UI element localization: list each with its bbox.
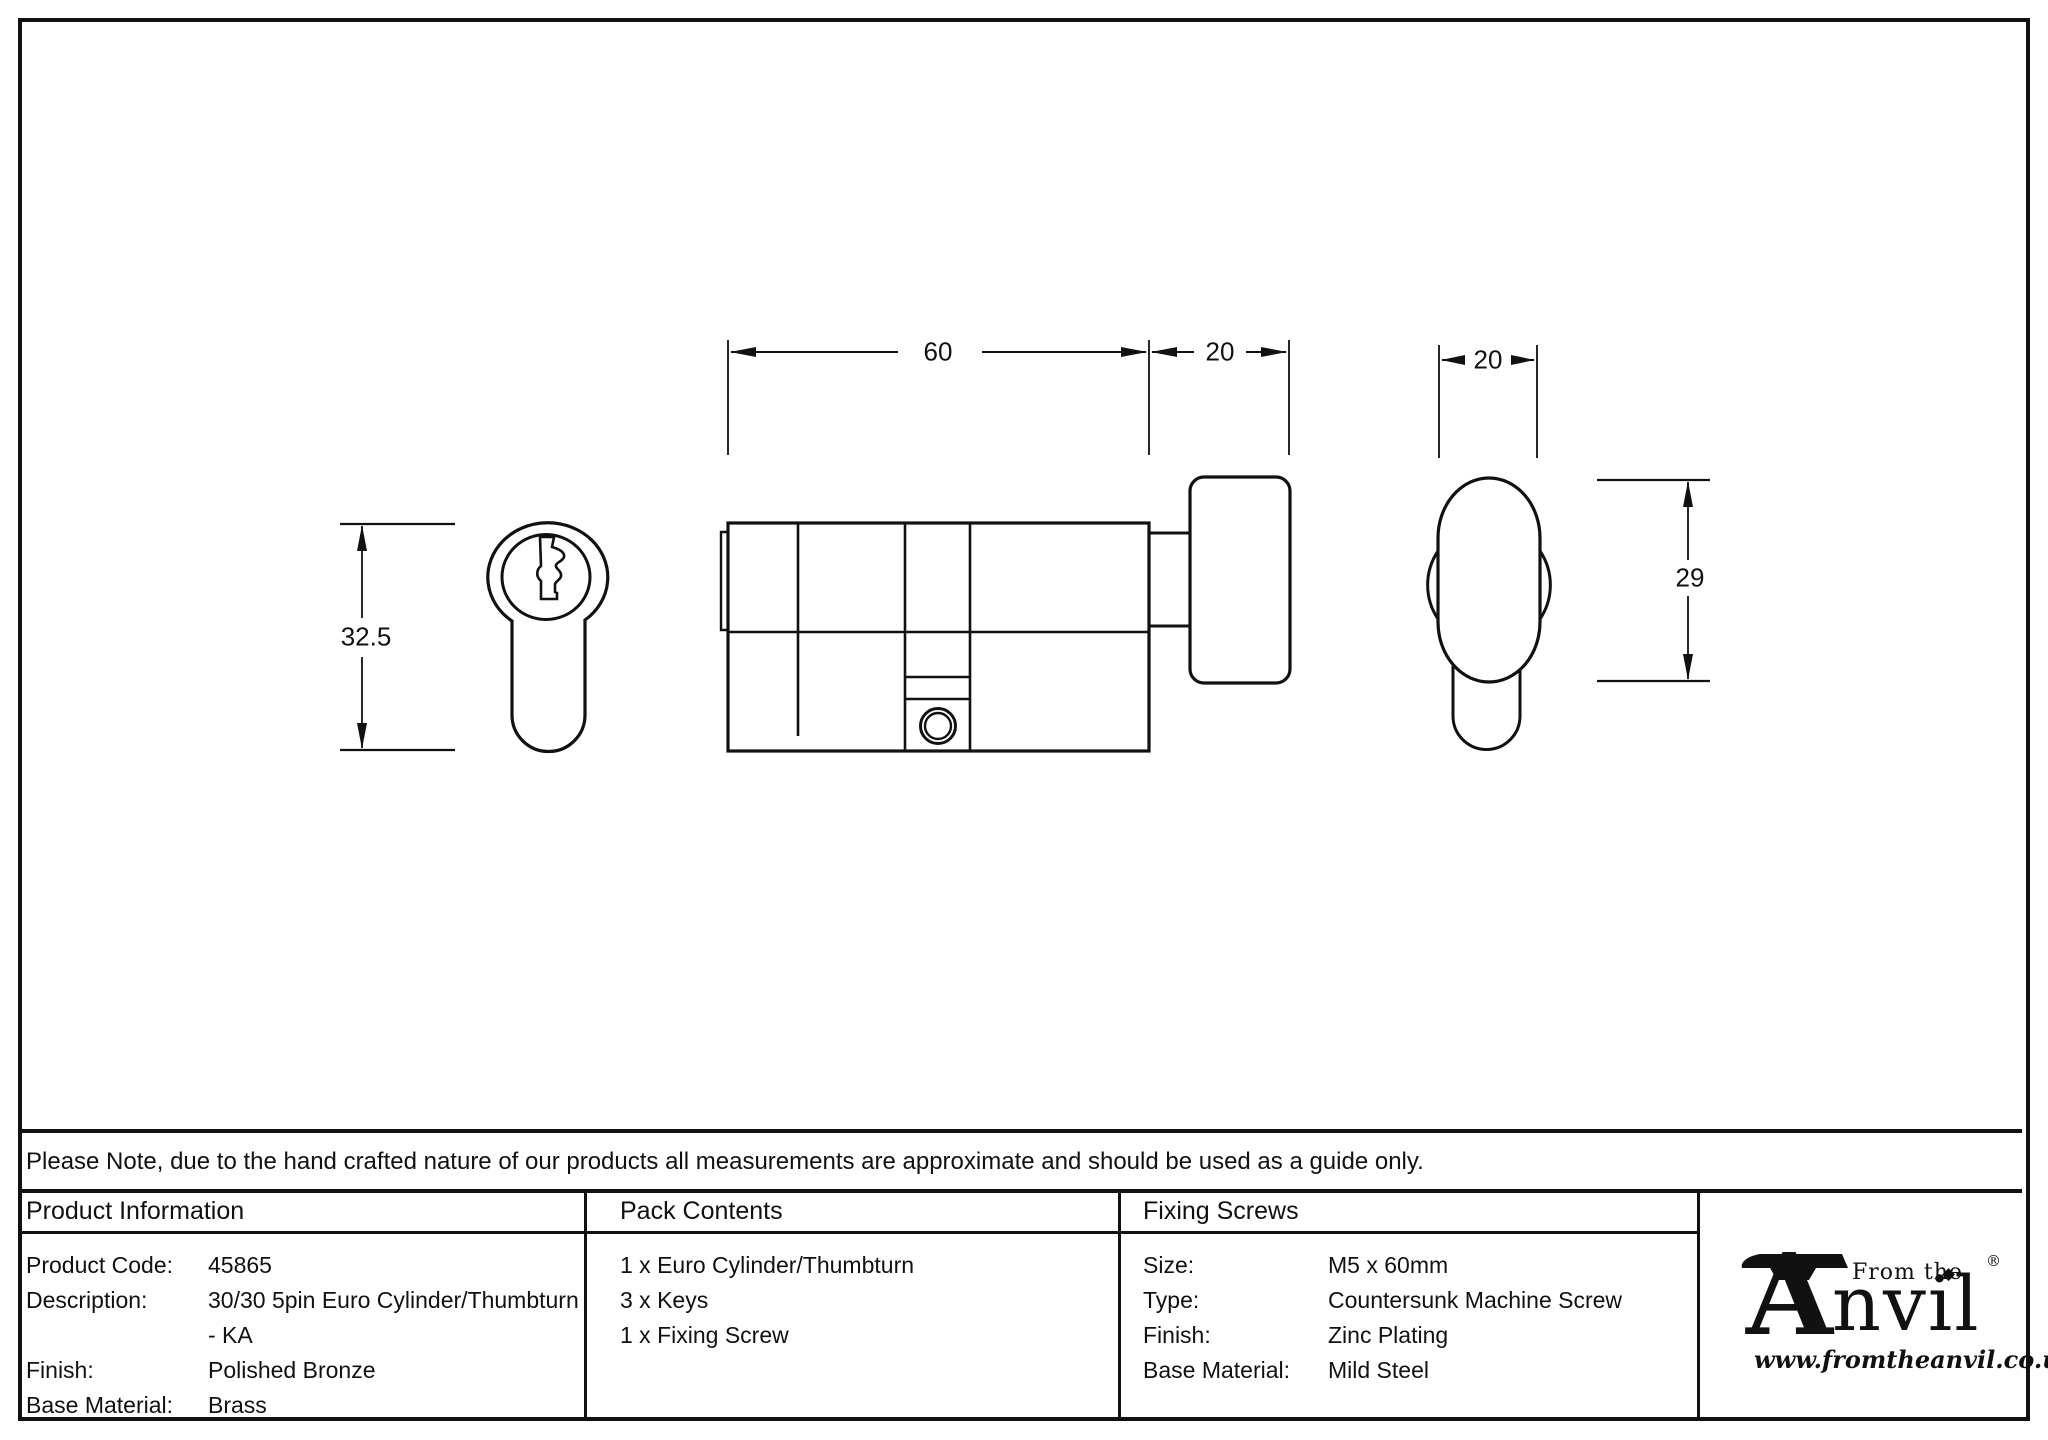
- divider-table-header: [18, 1231, 1697, 1234]
- product-code-value: 45865: [208, 1252, 272, 1279]
- pack-item: 1 x Fixing Screw: [620, 1322, 789, 1349]
- finish-label: Finish:: [26, 1357, 94, 1384]
- divider-col-3: [1697, 1189, 1700, 1417]
- header-pack-contents: Pack Contents: [620, 1197, 783, 1226]
- technical-drawing: [0, 0, 2048, 1440]
- divider-table-top: [18, 1189, 2022, 1193]
- dim-label-body-length: 60: [922, 337, 955, 368]
- thumbturn-front-view: [1428, 478, 1551, 750]
- dim-label-thumbturn-length: 20: [1204, 337, 1237, 368]
- finish-value: Polished Bronze: [208, 1357, 376, 1384]
- dim-label-face-height: 32.5: [339, 622, 394, 653]
- screw-type-value: Countersunk Machine Screw: [1328, 1287, 1622, 1314]
- base-material-label: Base Material:: [26, 1392, 173, 1419]
- dim-label-thumbturn-width: 20: [1472, 345, 1505, 376]
- cylinder-side-view: [721, 477, 1290, 751]
- screw-material-label: Base Material:: [1143, 1357, 1290, 1384]
- thumbturn-knob-side: [1190, 477, 1290, 683]
- measurement-note: Please Note, due to the hand crafted nat…: [26, 1148, 1424, 1176]
- brand-url: www.fromtheanvil.co.uk: [1754, 1345, 2048, 1374]
- key-face-view: [488, 523, 608, 752]
- header-product-information: Product Information: [26, 1197, 244, 1226]
- screw-size-value: M5 x 60mm: [1328, 1252, 1448, 1279]
- product-code-label: Product Code:: [26, 1252, 173, 1279]
- brand-name-rest: nvil: [1832, 1266, 1981, 1342]
- description-label: Description:: [26, 1287, 147, 1314]
- description-value-2: - KA: [208, 1322, 253, 1349]
- screw-finish-value: Zinc Plating: [1328, 1322, 1448, 1349]
- divider-col-2: [1118, 1189, 1121, 1417]
- spec-sheet-page: 60 20 20 32.5 29 Please Note, due to the…: [0, 0, 2048, 1440]
- base-material-value: Brass: [208, 1392, 267, 1419]
- divider-note-top: [18, 1129, 2022, 1133]
- screw-finish-label: Finish:: [1143, 1322, 1211, 1349]
- dim-label-thumbturn-height: 29: [1674, 563, 1707, 594]
- description-value: 30/30 5pin Euro Cylinder/Thumbturn: [208, 1287, 579, 1314]
- divider-col-1: [584, 1189, 587, 1417]
- brand-logo: A From the ◆ nvil ® www.fromtheanvil.co.…: [1738, 1244, 2038, 1379]
- screw-type-label: Type:: [1143, 1287, 1199, 1314]
- pack-item: 1 x Euro Cylinder/Thumbturn: [620, 1252, 914, 1279]
- screw-material-value: Mild Steel: [1328, 1357, 1429, 1384]
- screw-size-label: Size:: [1143, 1252, 1194, 1279]
- pack-item: 3 x Keys: [620, 1287, 708, 1314]
- registered-mark: ®: [1986, 1252, 2001, 1270]
- header-fixing-screws: Fixing Screws: [1143, 1197, 1299, 1226]
